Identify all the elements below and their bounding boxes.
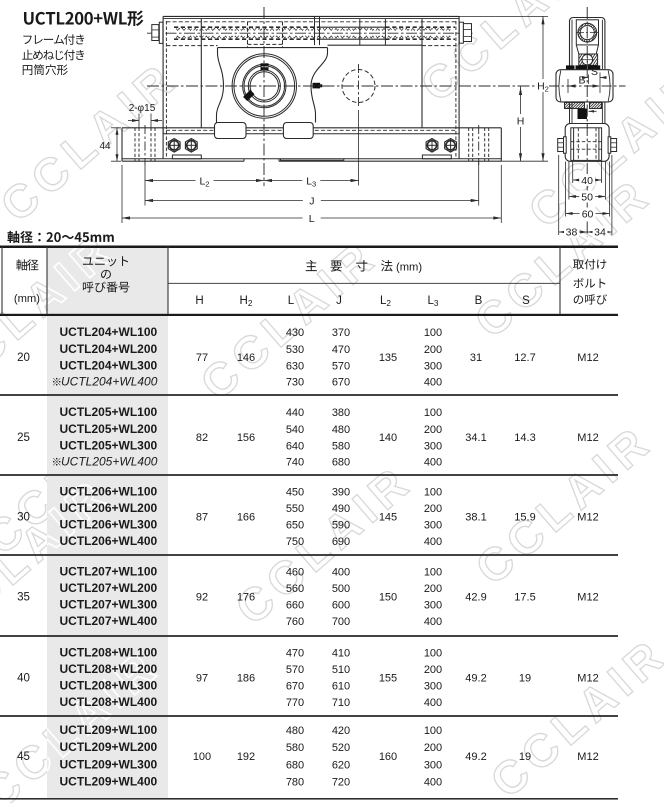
svg-text:155: 155 — [379, 672, 397, 684]
svg-text:740: 740 — [286, 457, 304, 469]
svg-text:30: 30 — [17, 511, 30, 523]
svg-text:CCLAIR: CCLAIR — [225, 454, 422, 635]
svg-text:520: 520 — [332, 742, 350, 754]
svg-text:440: 440 — [286, 407, 304, 419]
svg-text:760: 760 — [286, 616, 304, 628]
svg-text:UCTL204+WL400: UCTL204+WL400 — [61, 375, 158, 389]
svg-text:42.9: 42.9 — [465, 591, 486, 603]
svg-text:530: 530 — [286, 344, 304, 356]
svg-text:510: 510 — [332, 664, 350, 676]
svg-text:UCTL206+WL400: UCTL206+WL400 — [60, 534, 158, 548]
svg-text:17.5: 17.5 — [514, 591, 535, 603]
svg-text:400: 400 — [424, 697, 442, 709]
svg-text:400: 400 — [424, 377, 442, 389]
svg-text:M12: M12 — [577, 511, 598, 523]
svg-text:640: 640 — [286, 441, 304, 453]
svg-text:300: 300 — [424, 600, 442, 612]
svg-text:176: 176 — [237, 591, 255, 603]
svg-text:370: 370 — [332, 327, 350, 339]
svg-text:620: 620 — [332, 759, 350, 771]
svg-text:34: 34 — [594, 227, 606, 239]
svg-text:38: 38 — [566, 227, 578, 239]
svg-text:500: 500 — [332, 583, 350, 595]
svg-text:400: 400 — [424, 776, 442, 788]
svg-text:L2: L2 — [380, 295, 391, 308]
svg-text:610: 610 — [332, 681, 350, 693]
svg-text:UCTL205+WL200: UCTL205+WL200 — [60, 422, 158, 436]
svg-text:150: 150 — [379, 591, 397, 603]
svg-text:145: 145 — [379, 511, 397, 523]
svg-text:M12: M12 — [577, 352, 598, 364]
svg-text:35: 35 — [17, 591, 30, 603]
svg-text:580: 580 — [332, 441, 350, 453]
svg-text:100: 100 — [424, 327, 442, 339]
svg-text:200: 200 — [424, 583, 442, 595]
svg-text:87: 87 — [196, 511, 208, 523]
svg-text:650: 650 — [286, 520, 304, 532]
svg-text:77: 77 — [196, 352, 208, 364]
svg-text:UCTL207+WL100: UCTL207+WL100 — [60, 564, 158, 578]
svg-text:H: H — [517, 116, 525, 128]
svg-text:380: 380 — [332, 407, 350, 419]
svg-text:L3: L3 — [427, 295, 438, 308]
svg-text:300: 300 — [424, 681, 442, 693]
svg-text:600: 600 — [332, 600, 350, 612]
svg-text:100: 100 — [424, 647, 442, 659]
svg-text:UCTL209+WL200: UCTL209+WL200 — [60, 740, 158, 754]
svg-text:H2: H2 — [240, 295, 253, 308]
svg-text:630: 630 — [286, 361, 304, 373]
svg-text:L: L — [288, 295, 295, 307]
svg-text:49.2: 49.2 — [465, 672, 486, 684]
svg-text:156: 156 — [237, 432, 255, 444]
svg-text:B: B — [475, 295, 483, 307]
svg-text:(mm): (mm) — [14, 293, 40, 305]
svg-text:200: 200 — [424, 503, 442, 515]
svg-text:60: 60 — [582, 209, 594, 221]
svg-text:UCTL207+WL200: UCTL207+WL200 — [60, 581, 158, 595]
svg-text:19: 19 — [519, 751, 531, 763]
svg-text:50: 50 — [581, 192, 593, 204]
svg-text:400: 400 — [424, 616, 442, 628]
svg-text:540: 540 — [286, 424, 304, 436]
svg-text:UCTL208+WL200: UCTL208+WL200 — [60, 662, 158, 676]
svg-text:(mm): (mm) — [396, 262, 422, 274]
svg-text:UCTL205+WL100: UCTL205+WL100 — [60, 405, 158, 419]
svg-text:300: 300 — [424, 759, 442, 771]
svg-text:166: 166 — [237, 511, 255, 523]
svg-text:31: 31 — [470, 352, 482, 364]
svg-text:400: 400 — [424, 457, 442, 469]
svg-text:710: 710 — [332, 697, 350, 709]
svg-text:420: 420 — [332, 725, 350, 737]
svg-text:UCTL204+WL300: UCTL204+WL300 — [60, 359, 158, 373]
svg-text:M12: M12 — [577, 751, 598, 763]
svg-text:100: 100 — [424, 725, 442, 737]
svg-text:430: 430 — [286, 327, 304, 339]
svg-text:UCTL207+WL400: UCTL207+WL400 — [60, 614, 158, 628]
svg-text:390: 390 — [332, 486, 350, 498]
svg-text:25: 25 — [17, 432, 30, 444]
svg-text:670: 670 — [332, 377, 350, 389]
svg-text:UCTL204+WL200: UCTL204+WL200 — [60, 342, 158, 356]
svg-text:100: 100 — [193, 751, 211, 763]
svg-text:450: 450 — [286, 486, 304, 498]
svg-text:34.1: 34.1 — [465, 432, 486, 444]
svg-text:680: 680 — [286, 759, 304, 771]
svg-text:M12: M12 — [577, 591, 598, 603]
svg-text:300: 300 — [424, 520, 442, 532]
svg-text:2-φ15: 2-φ15 — [129, 103, 156, 114]
svg-text:140: 140 — [379, 432, 397, 444]
svg-text:750: 750 — [286, 536, 304, 548]
svg-text:100: 100 — [424, 407, 442, 419]
svg-text:200: 200 — [424, 742, 442, 754]
svg-text:400: 400 — [332, 566, 350, 578]
svg-text:770: 770 — [286, 697, 304, 709]
svg-text:560: 560 — [286, 583, 304, 595]
svg-text:S: S — [591, 66, 598, 78]
svg-text:135: 135 — [379, 352, 397, 364]
svg-text:S: S — [522, 295, 530, 307]
svg-text:160: 160 — [379, 751, 397, 763]
svg-text:590: 590 — [332, 520, 350, 532]
svg-text:44: 44 — [99, 141, 111, 152]
svg-text:L: L — [309, 213, 315, 225]
svg-text:CCLAIR: CCLAIR — [480, 627, 664, 803]
svg-text:730: 730 — [286, 377, 304, 389]
svg-text:UCTL206+WL200: UCTL206+WL200 — [60, 501, 158, 515]
svg-text:146: 146 — [237, 352, 255, 364]
svg-text:UCTL209+WL400: UCTL209+WL400 — [60, 774, 158, 788]
svg-text:400: 400 — [424, 536, 442, 548]
svg-text:19: 19 — [519, 672, 531, 684]
svg-text:UCTL207+WL300: UCTL207+WL300 — [60, 598, 158, 612]
svg-text:97: 97 — [196, 672, 208, 684]
svg-text:40: 40 — [581, 175, 593, 187]
svg-text:UCTL208+WL100: UCTL208+WL100 — [60, 645, 158, 659]
svg-text:200: 200 — [424, 424, 442, 436]
svg-text:570: 570 — [286, 664, 304, 676]
svg-text:UCTL208+WL300: UCTL208+WL300 — [60, 679, 158, 693]
svg-text:40: 40 — [17, 672, 30, 684]
svg-text:490: 490 — [332, 503, 350, 515]
svg-text:UCTL206+WL100: UCTL206+WL100 — [60, 484, 158, 498]
svg-text:100: 100 — [424, 486, 442, 498]
svg-text:J: J — [336, 295, 342, 307]
svg-text:UCTL205+WL400: UCTL205+WL400 — [61, 455, 158, 469]
svg-text:460: 460 — [286, 566, 304, 578]
svg-text:550: 550 — [286, 503, 304, 515]
svg-text:480: 480 — [332, 424, 350, 436]
svg-text:300: 300 — [424, 361, 442, 373]
svg-text:15.9: 15.9 — [514, 511, 535, 523]
svg-text:480: 480 — [286, 725, 304, 737]
svg-text:700: 700 — [332, 616, 350, 628]
svg-text:470: 470 — [332, 344, 350, 356]
svg-text:12.7: 12.7 — [514, 352, 535, 364]
svg-text:300: 300 — [424, 441, 442, 453]
svg-text:660: 660 — [286, 600, 304, 612]
svg-text:UCTL206+WL300: UCTL206+WL300 — [60, 518, 158, 532]
svg-text:780: 780 — [286, 776, 304, 788]
svg-text:UCTL204+WL100: UCTL204+WL100 — [60, 325, 158, 339]
svg-text:CCLAIR: CCLAIR — [465, 414, 662, 595]
svg-text:H: H — [195, 295, 203, 307]
svg-text:M12: M12 — [577, 672, 598, 684]
svg-text:20: 20 — [17, 352, 30, 364]
svg-text:UCTL209+WL100: UCTL209+WL100 — [60, 723, 158, 737]
svg-text:92: 92 — [196, 591, 208, 603]
svg-text:J: J — [309, 196, 314, 208]
svg-text:200: 200 — [424, 344, 442, 356]
svg-text:410: 410 — [332, 647, 350, 659]
svg-text:M12: M12 — [577, 432, 598, 444]
svg-text:570: 570 — [332, 361, 350, 373]
svg-text:UCTL209+WL300: UCTL209+WL300 — [60, 757, 158, 771]
svg-text:670: 670 — [286, 681, 304, 693]
svg-text:580: 580 — [286, 742, 304, 754]
svg-text:680: 680 — [332, 457, 350, 469]
svg-text:82: 82 — [196, 432, 208, 444]
svg-text:192: 192 — [237, 751, 255, 763]
svg-text:CCLAIR: CCLAIR — [0, 51, 187, 232]
svg-text:38.1: 38.1 — [465, 511, 486, 523]
svg-text:UCTL208+WL400: UCTL208+WL400 — [60, 695, 158, 709]
svg-text:470: 470 — [286, 647, 304, 659]
svg-text:186: 186 — [237, 672, 255, 684]
svg-text:UCTL205+WL300: UCTL205+WL300 — [60, 439, 158, 453]
svg-text:14.3: 14.3 — [514, 432, 535, 444]
svg-text:690: 690 — [332, 536, 350, 548]
svg-text:720: 720 — [332, 776, 350, 788]
svg-text:49.2: 49.2 — [465, 751, 486, 763]
svg-text:200: 200 — [424, 664, 442, 676]
svg-text:45: 45 — [17, 751, 30, 763]
svg-text:100: 100 — [424, 566, 442, 578]
